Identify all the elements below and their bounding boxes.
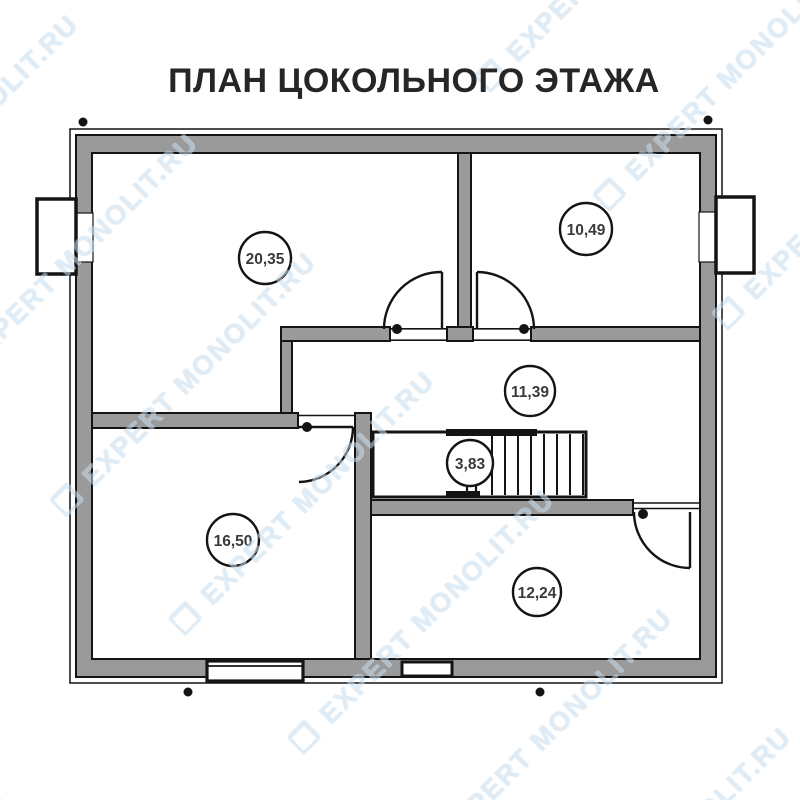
wall-hall-left-side: [281, 341, 292, 413]
wall-hall-top-left: [281, 327, 390, 341]
corner-dot: [79, 118, 88, 127]
door-swing-arc: [299, 427, 353, 482]
room-area-badges: 20,35 10,49 11,39 3,83 16,50 12,24: [207, 203, 612, 616]
wall-bottom-left-room-top: [92, 413, 298, 428]
room-area-label: 16,50: [214, 533, 253, 550]
corner-dot: [184, 688, 193, 697]
door-room-bottom-right: [634, 512, 690, 568]
door-dot: [302, 422, 312, 432]
room-area-label: 10,49: [567, 222, 606, 239]
wall-center-vertical: [355, 413, 371, 659]
door-room-top-right: [477, 272, 534, 329]
window-left: [37, 199, 76, 274]
room-area-badge-top-left: 20,35: [239, 232, 291, 284]
room-area-label: 11,39: [511, 384, 549, 401]
window-bottom-right: [402, 662, 452, 676]
room-area-badge-hallway: 11,39: [505, 366, 555, 416]
room-area-label: 20,35: [246, 251, 285, 268]
door-swing-arc: [634, 512, 690, 568]
page-title: ПЛАН ЦОКОЛЬНОГО ЭТАЖА: [14, 62, 800, 101]
door-dot: [519, 324, 529, 334]
corner-dot: [536, 688, 545, 697]
plan-lines: 20,35 10,49 11,39 3,83 16,50 12,24: [37, 116, 754, 697]
door-swing-arc: [477, 272, 534, 329]
window-bottom-left: [207, 661, 303, 681]
walls: [76, 135, 716, 677]
room-area-badge-bottom-left: 16,50: [207, 514, 259, 566]
room-area-badge-top-right: 10,49: [560, 203, 612, 255]
room-area-label: 3,83: [455, 456, 486, 473]
outer-wall: [76, 135, 716, 677]
door-dot: [638, 509, 648, 519]
room-area-badge-bottom-right: 12,24: [513, 568, 561, 616]
room-area-label: 12,24: [518, 585, 557, 602]
corner-dot: [704, 116, 713, 125]
wall-hall-top-right: [531, 327, 700, 341]
door-dot: [392, 324, 402, 334]
door-room-top-left: [384, 272, 442, 329]
plan-outline: [70, 129, 722, 683]
wall-bottom-right-room-top: [371, 500, 633, 515]
floor-plan: 20,35 10,49 11,39 3,83 16,50 12,24: [0, 0, 800, 800]
door-room-bottom-left: [298, 427, 353, 482]
wall-hall-top-stub: [447, 327, 473, 341]
door-swing-arc: [384, 272, 442, 329]
wall-top-rooms-divider: [458, 153, 471, 341]
room-area-badge-staircase: 3,83: [447, 440, 493, 486]
plan-dots: [79, 116, 713, 697]
window-right: [716, 197, 754, 273]
